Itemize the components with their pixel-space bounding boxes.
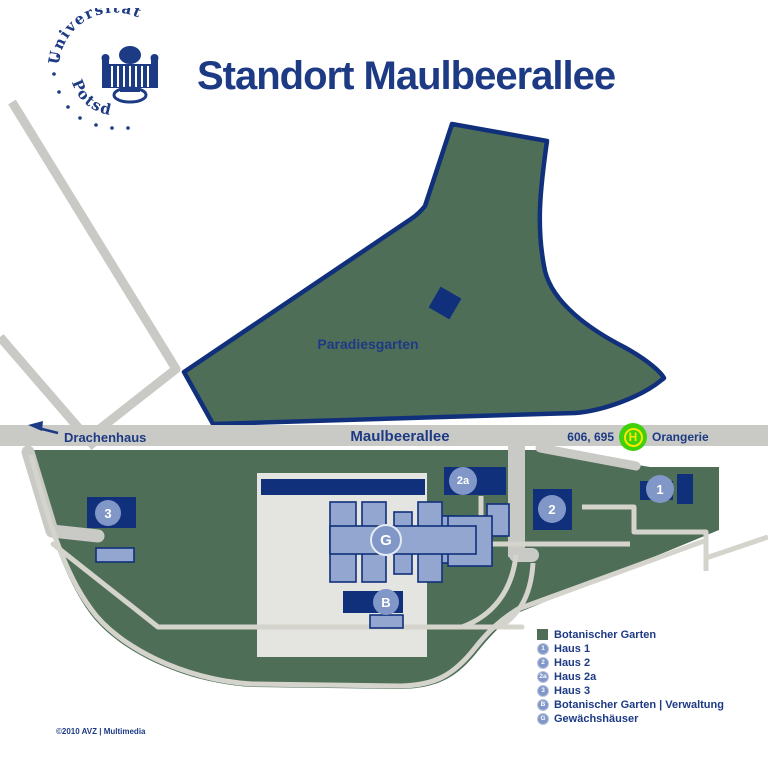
badge-haus2a: 2a [449,467,477,495]
haus3-badge-icon: 3 [537,685,549,697]
legend-item-botanischer-garten: Botanischer Garten [537,628,724,642]
orangerie-label: Orangerie [652,430,709,444]
university-potsdam-logo: Universität Potsdam [44,8,184,140]
badge-haus2: 2 [538,495,566,523]
badge-haus3: 3 [95,500,121,526]
legend-item-haus3: 3 Haus 3 [537,684,724,698]
maulbeerallee-label: Maulbeerallee [350,428,449,445]
gewaechshaeuser-badge-icon: G [537,713,549,725]
legend-item-verwaltung: B Botanischer Garten | Verwaltung [537,698,724,712]
legend-item-haus2a: 2a Haus 2a [537,670,724,684]
bus-stop-icon: H [619,423,647,451]
badge-verwaltung: B [373,589,399,615]
annex-verwaltung [370,615,403,628]
badge-gewaechshaeuser: G [370,524,402,556]
legend-item-haus2: 2 Haus 2 [537,656,724,670]
haus1-badge-icon: 1 [537,643,549,655]
campus-map-page: Drachenhaus Maulbeerallee 606, 695 Orang… [0,0,768,768]
annex-haus3 [96,548,134,562]
footpath-stub-southeast [706,537,768,558]
haus2a-badge-icon: 2a [537,671,549,683]
drachenhaus-label: Drachenhaus [64,430,146,445]
verwaltung-badge-icon: B [537,699,549,711]
legend-item-haus1: 1 Haus 1 [537,642,724,656]
bus-lines-label: 606, 695 [567,430,614,444]
garden-square-icon [537,629,548,640]
paradiesgarten-label: Paradiesgarten [317,336,418,352]
paradiesgarten-area [184,124,664,424]
road-vertical-center [508,446,525,557]
bus-stop-h: H [624,428,643,447]
building-haus1-east [677,474,693,504]
badge-haus1: 1 [646,475,674,503]
legend: Botanischer Garten 1 Haus 1 2 Haus 2 2a … [537,628,724,726]
page-title: Standort Maulbeerallee [197,54,615,99]
legend-item-gewaechshaeuser: G Gewächshäuser [537,712,724,726]
copyright-note: ©2010 AVZ | Multimedia [56,727,146,736]
haus2-badge-icon: 2 [537,657,549,669]
building-north-bar [261,479,425,495]
